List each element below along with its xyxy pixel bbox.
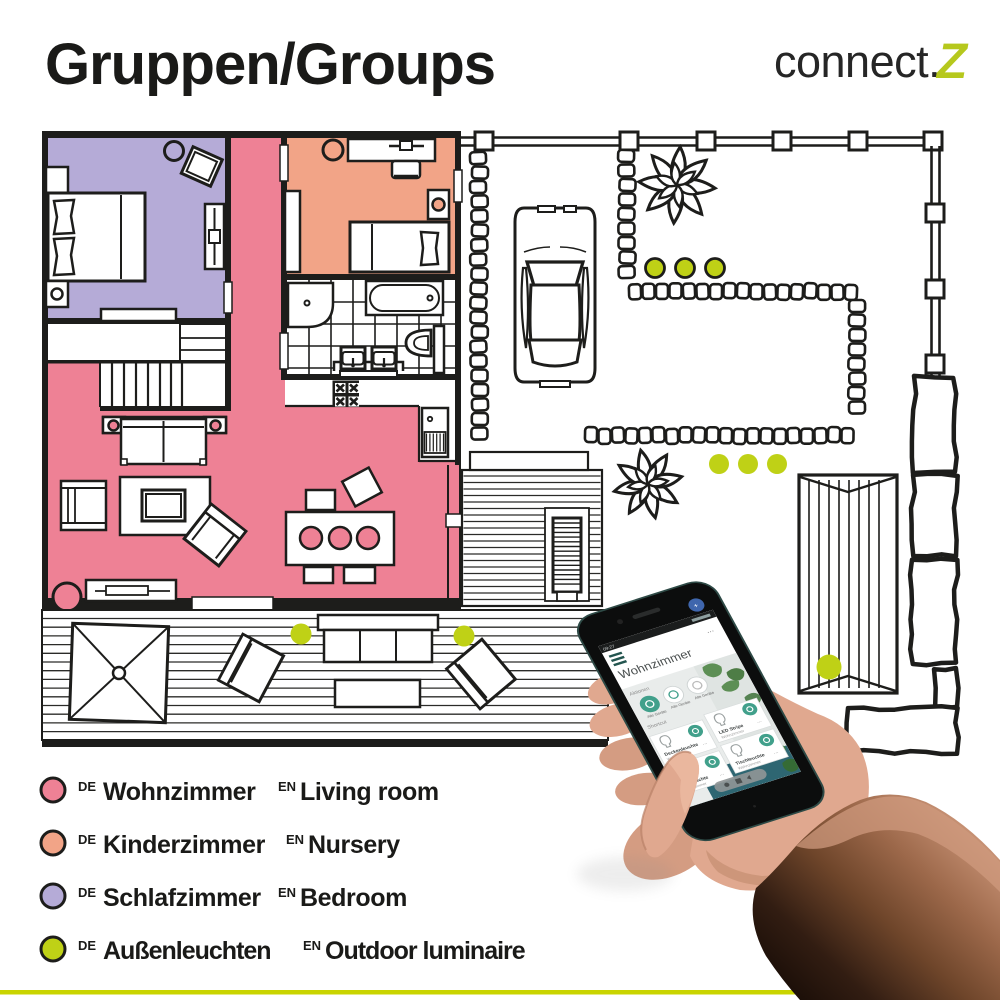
svg-text:connect.: connect.: [774, 36, 940, 87]
svg-text:Wohnzimmer: Wohnzimmer: [103, 778, 256, 806]
svg-text:EN: EN: [303, 938, 321, 953]
svg-text:Outdoor luminaire: Outdoor luminaire: [325, 937, 526, 965]
svg-text:Living room: Living room: [300, 778, 439, 806]
svg-text:DE: DE: [78, 779, 96, 794]
svg-text:DE: DE: [78, 938, 96, 953]
svg-text:EN: EN: [278, 885, 296, 900]
svg-text:Außenleuchten: Außenleuchten: [103, 937, 271, 965]
svg-text:DE: DE: [78, 832, 96, 847]
svg-text:Bedroom: Bedroom: [300, 884, 407, 912]
svg-text:EN: EN: [286, 832, 304, 847]
svg-text:Gruppen/Groups: Gruppen/Groups: [45, 32, 495, 97]
svg-text:EN: EN: [278, 779, 296, 794]
svg-text:Kinderzimmer: Kinderzimmer: [103, 831, 266, 859]
svg-text:Schlafzimmer: Schlafzimmer: [103, 884, 261, 912]
svg-text:DE: DE: [78, 885, 96, 900]
svg-text:Nursery: Nursery: [308, 831, 400, 859]
